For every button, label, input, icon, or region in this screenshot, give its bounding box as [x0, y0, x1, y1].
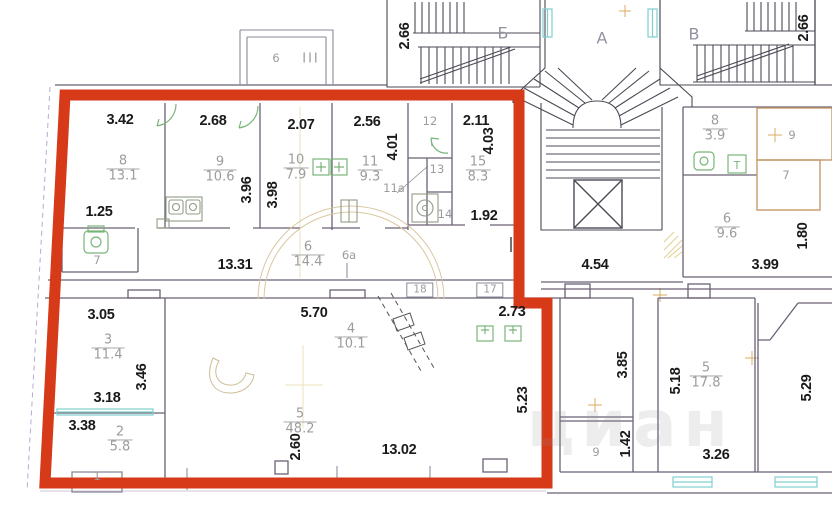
dim-1-42: 1.42 — [618, 430, 634, 457]
room-2-area: 5.8 — [108, 440, 133, 455]
room-15-number: 15 — [466, 155, 491, 169]
room-10-area: 7.9 — [284, 168, 309, 183]
room-10-number: 10 — [284, 153, 309, 167]
label-box-17: 17 — [476, 283, 503, 298]
dim-13-31: 13.31 — [218, 257, 253, 273]
neighbor-room-5-label: 5 17.8 — [690, 361, 723, 390]
dim-4-54: 4.54 — [581, 257, 608, 273]
glass-partition — [57, 409, 153, 415]
dim-5-29: 5.29 — [799, 374, 815, 401]
label-balcony-1: 1 — [93, 469, 100, 483]
dim-5-23: 5.23 — [515, 386, 531, 413]
window-icon — [648, 9, 657, 37]
dashed-stair — [378, 293, 434, 371]
cabinet-icon — [341, 200, 357, 222]
dim-5-18: 5.18 — [668, 367, 684, 394]
room-6-number: 6 — [292, 240, 325, 254]
label-wc-7: 7 — [93, 253, 100, 267]
dim-2-66-right: 2.66 — [796, 14, 812, 41]
dim-1-25: 1.25 — [85, 204, 112, 220]
label-neighbor-7: 7 — [782, 168, 789, 182]
room-4-area: 10.1 — [335, 337, 368, 352]
room-3-area: 11.4 — [92, 348, 125, 363]
room-8-label: 8 13.1 — [107, 154, 140, 183]
room-4-number: 4 — [335, 322, 368, 336]
balcony-hatch-mark: III — [302, 52, 320, 67]
dim-3-96: 3.96 — [239, 176, 255, 203]
washing-machine-icon — [412, 194, 438, 222]
dim-4-01: 4.01 — [385, 133, 401, 160]
t-fixture-label: Т — [733, 159, 741, 172]
room-11-number: 11 — [358, 155, 383, 169]
room-11-area: 9.3 — [358, 170, 383, 185]
dim-13-02: 13.02 — [382, 442, 417, 458]
room-6-area: 14.4 — [292, 255, 325, 270]
dim-2-56: 2.56 — [353, 114, 380, 130]
room-4-label: 4 10.1 — [335, 322, 368, 351]
dim-2-68: 2.68 — [199, 113, 226, 129]
electric-panel-icons — [477, 326, 521, 341]
elevator-shaft — [574, 180, 622, 228]
neighbor-room-6-label: 6 9.6 — [715, 212, 740, 241]
toilet-icon-neighbor — [694, 152, 714, 170]
window-icon — [543, 9, 552, 37]
neighbor-room-6-number: 6 — [715, 212, 740, 226]
dim-3-05: 3.05 — [87, 307, 114, 323]
dim-2-73: 2.73 — [498, 304, 525, 320]
neighbor-room-8-area: 3.9 — [703, 129, 728, 144]
room-3-label: 3 11.4 — [92, 333, 125, 362]
dim-5-70: 5.70 — [300, 305, 327, 321]
dim-2-66-left: 2.66 — [397, 22, 413, 49]
dim-3-18: 3.18 — [93, 390, 120, 406]
dim-3-46: 3.46 — [134, 363, 150, 390]
stair-right-block — [660, 0, 815, 85]
room-2-label: 2 5.8 — [108, 425, 133, 454]
neighbor-room-5-number: 5 — [690, 361, 723, 375]
neighbor-room-5-area: 17.8 — [690, 376, 723, 391]
dim-3-98: 3.98 — [265, 181, 281, 208]
sink-icons — [313, 159, 347, 175]
room-6-label: 6 14.4 — [292, 240, 325, 269]
dim-3-38: 3.38 — [68, 418, 95, 434]
neighbor-room-8-number: 8 — [703, 114, 728, 128]
room-3-number: 3 — [92, 333, 125, 347]
label-room-11a: 11а — [383, 181, 405, 195]
room-5-number: 5 — [284, 407, 317, 421]
window-icon — [775, 477, 817, 487]
dim-3-42: 3.42 — [106, 112, 133, 128]
stove-icon — [157, 197, 202, 228]
dim-1-80: 1.80 — [795, 222, 811, 249]
room-15-label: 15 8.3 — [466, 155, 491, 184]
neighbor-room-8-label: 8 3.9 — [703, 114, 728, 143]
room-8-number: 8 — [107, 154, 140, 168]
floor-plan: Т 3.42 2.68 2.07 2.56 2.11 4.01 4.03 3. — [0, 0, 832, 521]
dim-2-07: 2.07 — [287, 117, 314, 133]
label-room-14: 14 — [438, 207, 453, 221]
room-8-area: 13.1 — [107, 169, 140, 184]
room-9-label: 9 10.6 — [204, 155, 237, 184]
label-room-13: 13 — [430, 162, 445, 176]
dim-2-60: 2.60 — [288, 433, 304, 460]
room-15-area: 8.3 — [466, 170, 491, 185]
room-10-label: 10 7.9 — [284, 153, 309, 182]
label-room-12: 12 — [423, 114, 438, 128]
dim-1-92: 1.92 — [470, 208, 497, 224]
dim-3-99: 3.99 — [751, 257, 778, 273]
tan-room-outlines — [757, 108, 832, 210]
label-small-9: 9 — [592, 445, 599, 459]
stair-center-label: А — [597, 29, 608, 48]
room-9-number: 9 — [204, 155, 237, 169]
label-room-6a: 6а — [342, 248, 356, 262]
dim-4-03: 4.03 — [481, 127, 497, 154]
window-icon — [673, 477, 712, 487]
room-11-label: 11 9.3 — [358, 155, 383, 184]
stair-left-label: Б — [498, 24, 509, 43]
label-box-18: 18 — [406, 283, 433, 298]
stair-right-label: В — [689, 25, 700, 44]
toilet-icon — [84, 226, 108, 253]
hatch-patch — [664, 232, 682, 258]
room5-curve — [210, 358, 254, 393]
neighbor-room-6-area: 9.6 — [715, 227, 740, 242]
label-neighbor-9: 9 — [788, 128, 795, 142]
label-balcony-6: 6 — [272, 51, 279, 65]
room-5-label: 5 48.2 — [284, 407, 317, 436]
room-9-area: 10.6 — [204, 170, 237, 185]
room-2-number: 2 — [108, 425, 133, 439]
dim-3-85: 3.85 — [615, 351, 631, 378]
dim-3-26: 3.26 — [702, 447, 729, 463]
